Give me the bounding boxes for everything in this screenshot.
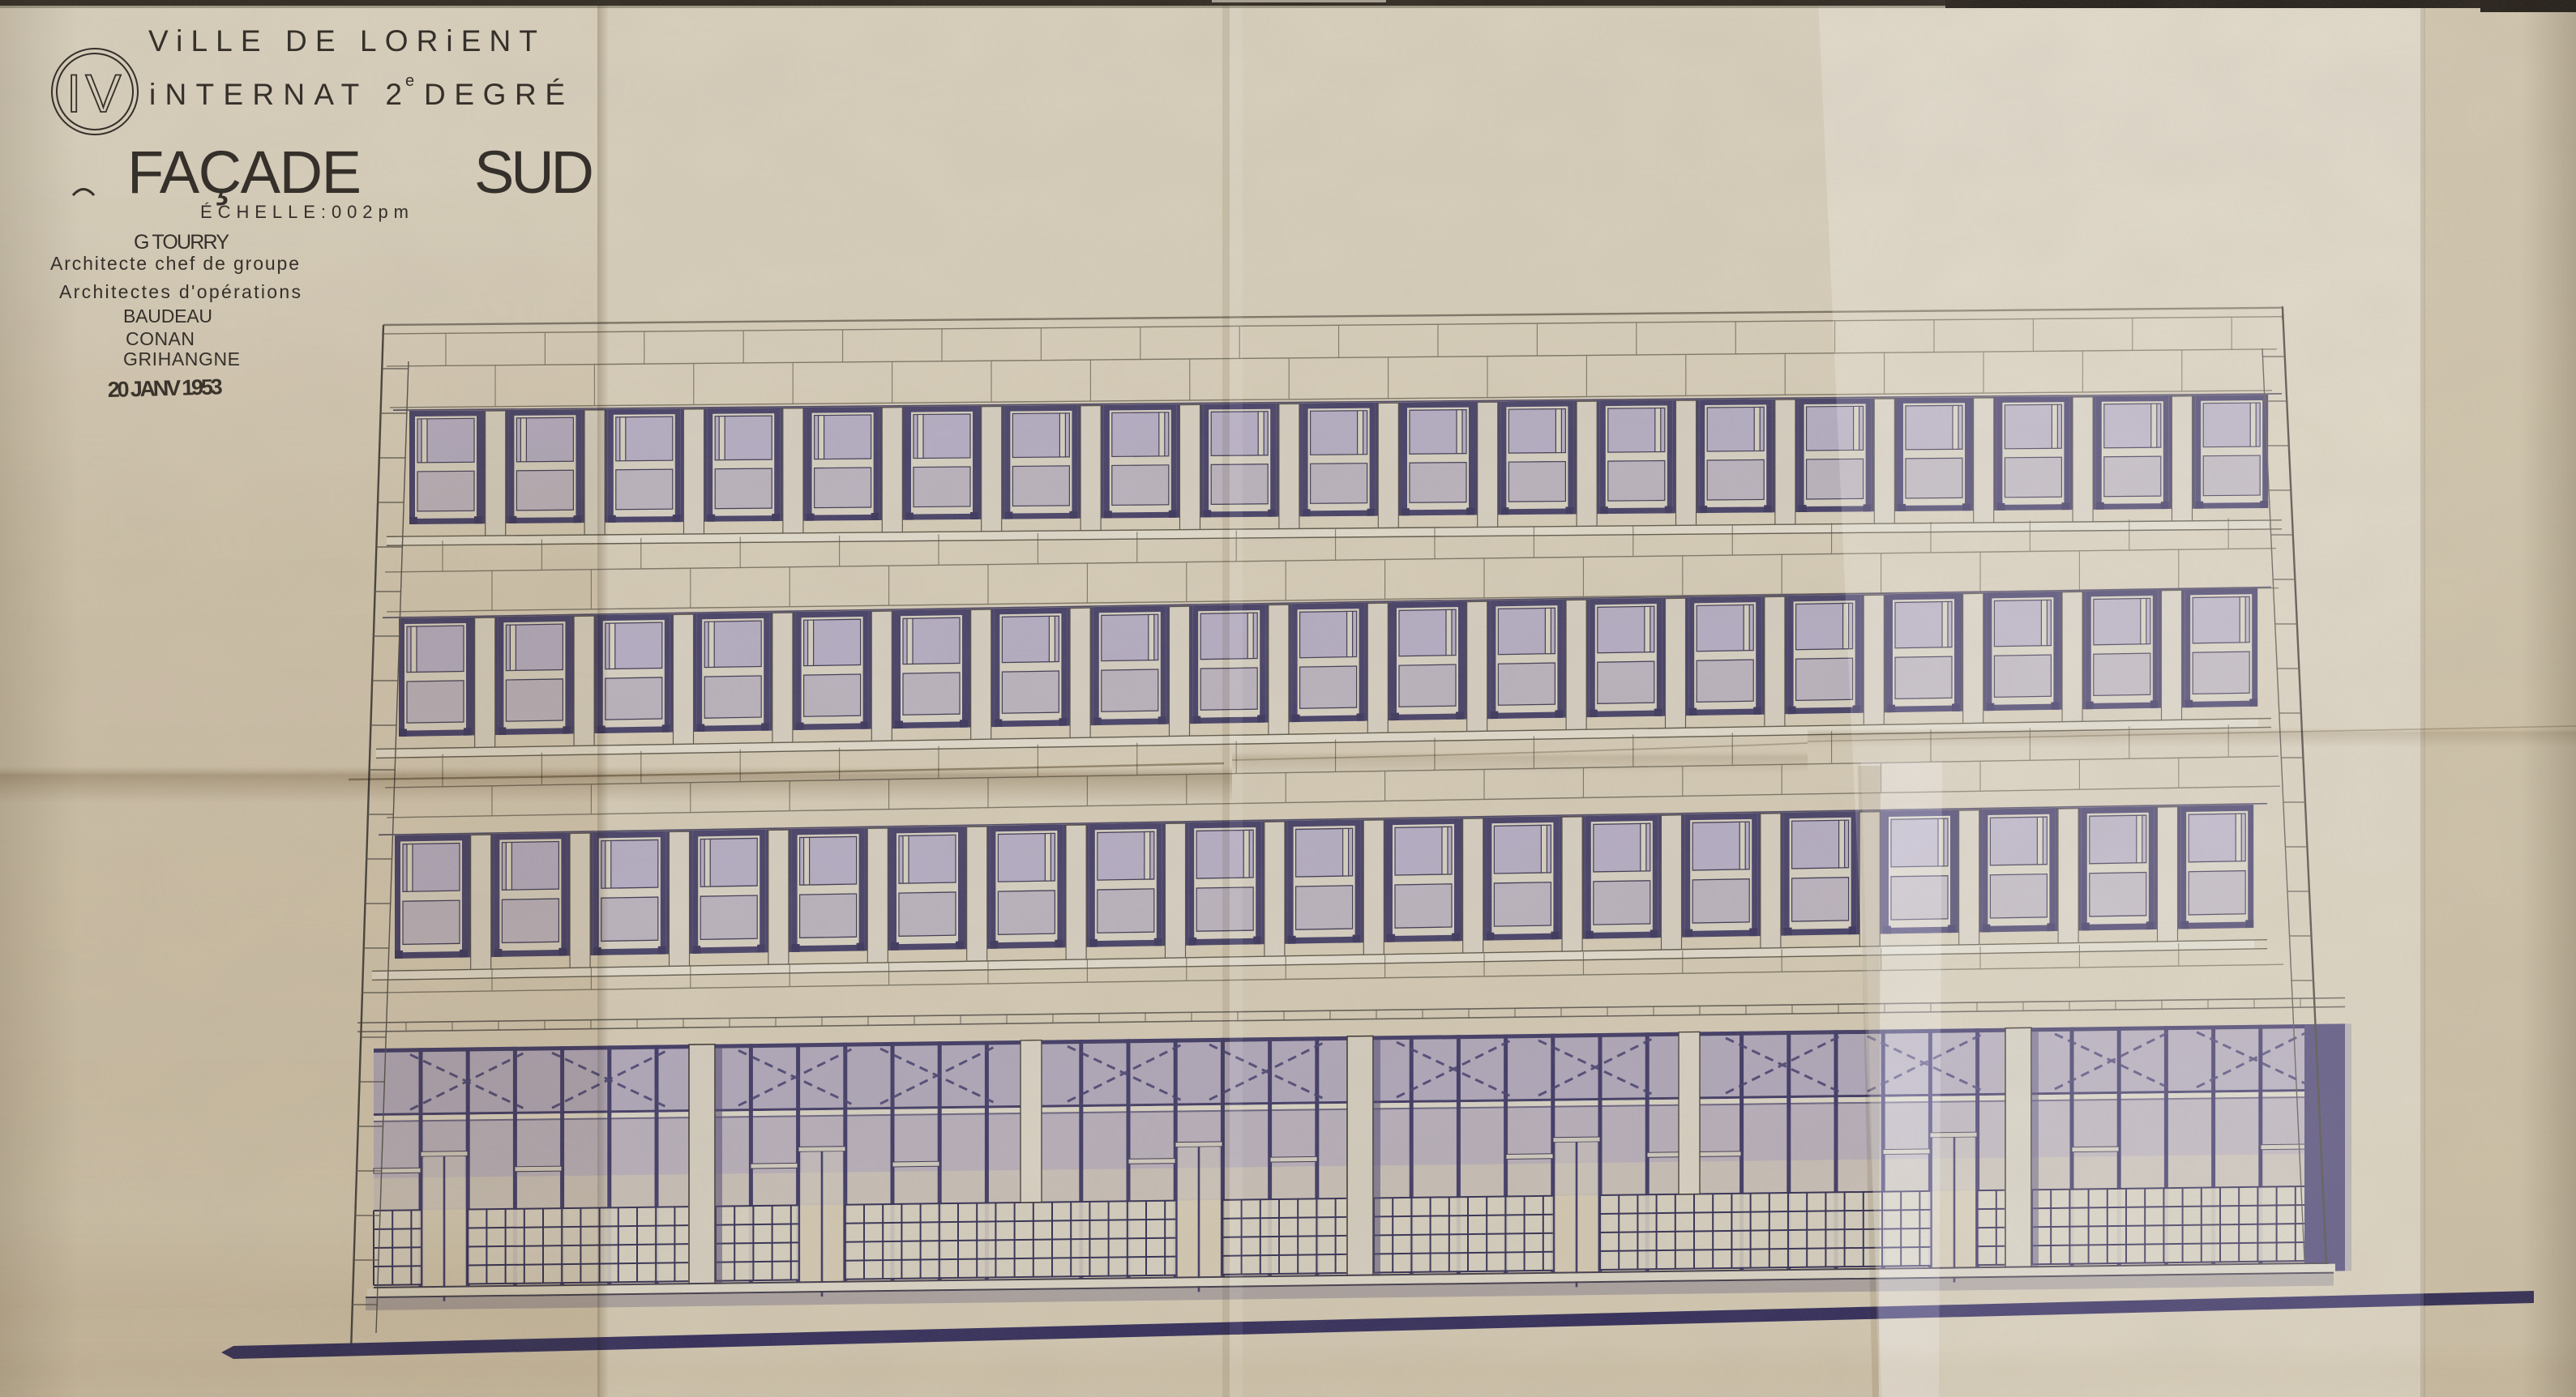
svg-text:FAÇADE: FAÇADE bbox=[127, 139, 362, 206]
svg-text:G TOURRY: G TOURRY bbox=[134, 231, 229, 254]
svg-text:SUD: SUD bbox=[474, 139, 594, 206]
svg-text:Architecte chef de groupe: Architecte chef de groupe bbox=[50, 253, 299, 274]
svg-text:e: e bbox=[405, 72, 414, 90]
svg-text:GRIHANGNE: GRIHANGNE bbox=[123, 348, 240, 370]
svg-text:20 JANV 1953: 20 JANV 1953 bbox=[107, 374, 223, 402]
svg-text:CONAN: CONAN bbox=[126, 328, 195, 349]
svg-text:ViLLE DE LORiENT: ViLLE DE LORiENT bbox=[148, 24, 537, 58]
svg-text:Architectes d'opérations: Architectes d'opérations bbox=[59, 281, 301, 302]
svg-text:BAUDEAU: BAUDEAU bbox=[123, 305, 212, 327]
svg-text:IV: IV bbox=[66, 63, 125, 123]
